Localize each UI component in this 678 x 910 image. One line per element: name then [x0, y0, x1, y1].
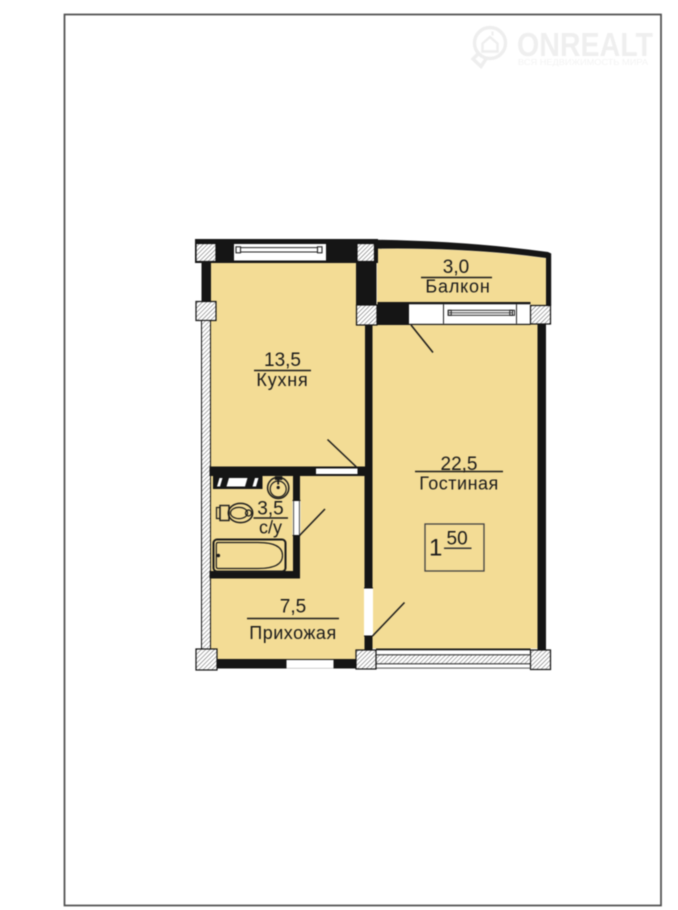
svg-text:3,0: 3,0 — [443, 257, 469, 278]
svg-text:ВСЯ НЕДВИЖИМОСТЬ МИРА: ВСЯ НЕДВИЖИМОСТЬ МИРА — [518, 57, 648, 67]
svg-text:7,5: 7,5 — [280, 597, 306, 618]
svg-text:1: 1 — [429, 535, 442, 562]
svg-text:с/у: с/у — [259, 518, 282, 538]
svg-text:Гостиная: Гостиная — [419, 474, 499, 494]
svg-text:13,5: 13,5 — [264, 350, 301, 371]
svg-text:50: 50 — [447, 529, 468, 550]
svg-text:Прихожая: Прихожая — [249, 623, 336, 643]
svg-text:Балкон: Балкон — [425, 277, 490, 297]
svg-text:Кухня: Кухня — [256, 370, 308, 390]
svg-text:3,5: 3,5 — [257, 499, 283, 520]
